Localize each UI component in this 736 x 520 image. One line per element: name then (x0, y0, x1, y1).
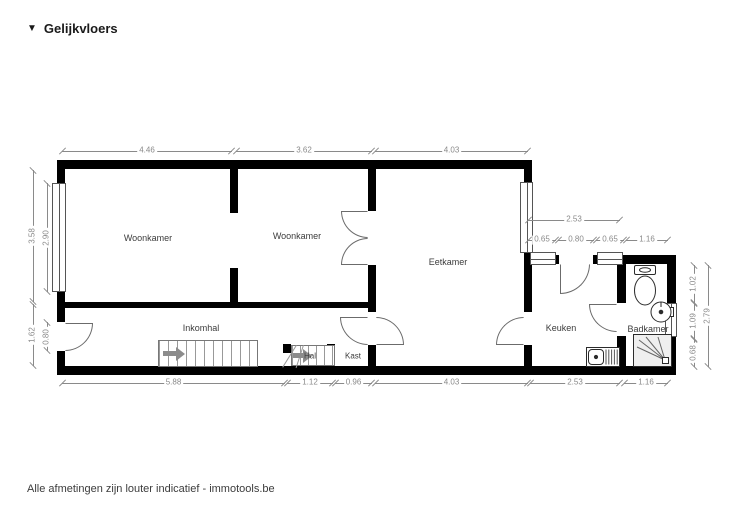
dimension-bottom-1: 5.88 (62, 377, 285, 389)
dimension-bottom-3: 0.96 (335, 377, 372, 389)
shower-icon (633, 334, 672, 367)
wall-kast-right (368, 345, 376, 366)
floorplan-page: ▼ Gelijkvloers (0, 0, 736, 520)
dimension-right-shower: 0.68 (688, 339, 700, 367)
dimension-right-window: 1.09 (688, 303, 700, 339)
room-label-badkamer: Badkamer (627, 324, 668, 334)
dimension-bottom-4: 4.03 (375, 377, 528, 389)
window-left-woonkamer (52, 183, 66, 292)
room-label-woonkamer-2: Woonkamer (273, 231, 321, 241)
dimension-left-room-height: 3.58 (27, 170, 39, 302)
opening-eetkamer-keuken (524, 312, 532, 345)
floor-title: Gelijkvloers (44, 21, 118, 36)
dimension-right-total: 2.79 (702, 265, 714, 367)
wall-outer-top (57, 160, 532, 169)
room-label-kast: Kast (345, 352, 361, 361)
room-label-keuken: Keuken (546, 323, 577, 333)
wall-woonkamer-divider-bottom (230, 268, 238, 302)
wall-woonkamer-divider-top (230, 169, 238, 213)
dimension-annex-width: 2.53 (528, 214, 620, 226)
dimension-left-window: 2.90 (41, 183, 53, 292)
door-arc-front-door (65, 323, 93, 351)
wall-outer-bottom (57, 366, 676, 375)
wall-stair-stub-left (283, 344, 291, 353)
kitchen-sink-icon (586, 347, 620, 367)
room-label-inkomhal: Inkomhal (183, 323, 220, 333)
opening-keuken-badkamer (617, 303, 626, 336)
window-keuken-left (530, 252, 556, 265)
dimension-top-2: 3.62 (236, 145, 372, 157)
floor-header[interactable]: ▼ Gelijkvloers (27, 21, 118, 36)
stair-direction-arrow-icon (163, 351, 176, 356)
dimension-left-hall-height: 1.62 (27, 304, 39, 366)
room-label-woonkamer-1: Woonkamer (124, 233, 172, 243)
dimension-annex-window-left: 0.65 (528, 234, 556, 246)
dimension-top-3: 4.03 (375, 145, 528, 157)
dimension-bottom-2: 1.12 (287, 377, 333, 389)
dimension-annex-door: 0.80 (558, 234, 594, 246)
dimension-right-toilet: 1.02 (688, 265, 700, 303)
dimension-bottom-5: 2.53 (530, 377, 620, 389)
dimension-annex-window-right: 0.65 (596, 234, 624, 246)
door-arc-keuken-outside (560, 264, 590, 294)
door-arc-keuken-badkamer (589, 304, 617, 332)
door-arc-double-door-top (341, 211, 368, 238)
washbasin-icon (649, 299, 675, 325)
dimension-bottom-6: 1.16 (624, 377, 668, 389)
collapse-triangle-icon[interactable]: ▼ (27, 24, 37, 34)
door-arc-double-door-bottom (341, 238, 368, 265)
door-arc-hal-eetkamer (376, 317, 404, 345)
dimension-top-1: 4.46 (62, 145, 232, 157)
room-label-eetkamer: Eetkamer (429, 257, 468, 267)
dimension-front-door: 0.80 (41, 322, 53, 351)
door-arc-eetkamer-keuken (496, 317, 524, 345)
opening-keuken-outside (559, 255, 593, 264)
cellar-arrow-icon (293, 353, 303, 358)
opening-front-door (57, 322, 65, 351)
door-arc-kast (340, 317, 368, 345)
room-label-hal: Hal (304, 352, 316, 361)
window-keuken-right (597, 252, 623, 265)
disclaimer-text: Alle afmetingen zijn louter indicatief -… (27, 483, 275, 495)
dimension-toilet-width: 1.16 (626, 234, 668, 246)
stair-direction-arrowhead-icon (176, 347, 185, 361)
wall-eetkamer-divider-top (368, 169, 376, 211)
wall-hall-divider (57, 302, 376, 308)
